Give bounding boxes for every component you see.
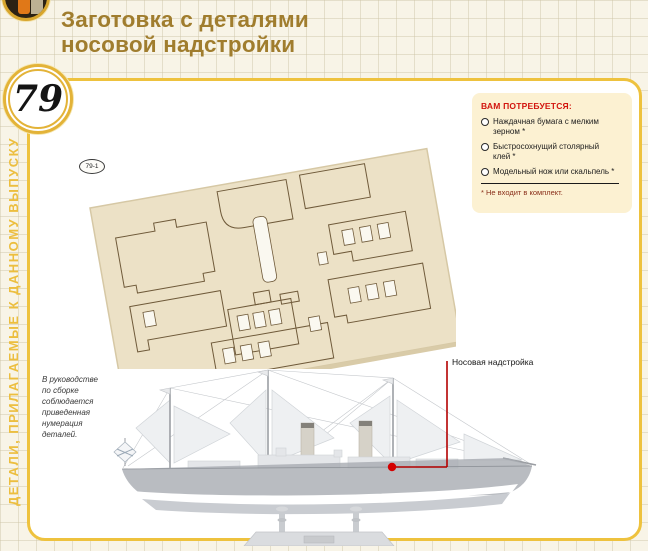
magazine-page: Заготовка с деталями носовой надстройки … — [0, 0, 648, 551]
requirement-label: Быстросохнущий столярный клей * — [493, 142, 599, 161]
requirements-footnote: * Не входит в комплект. — [481, 188, 623, 197]
page-title: Заготовка с деталями носовой надстройки — [61, 7, 309, 57]
hull — [122, 458, 532, 514]
requirement-label: Модельный нож или скальпель * — [493, 167, 614, 177]
requirement-item: Наждачная бумага с мелким зерном * — [481, 117, 623, 136]
assembly-note: В руководстве по сборке соблюдается прив… — [42, 374, 112, 440]
issue-number-badge: 79 — [3, 64, 73, 134]
publisher-logo-icon — [2, 0, 50, 21]
ship-model-photo — [108, 368, 538, 546]
stern-flag — [114, 438, 136, 466]
checkbox-circle-icon — [481, 118, 489, 126]
callout-label: Носовая надстройка — [452, 357, 533, 367]
mast-flags — [160, 370, 393, 394]
checkbox-circle-icon — [481, 143, 489, 151]
checkbox-circle-icon — [481, 168, 489, 176]
requirement-item: Быстросохнущий столярный клей * — [481, 142, 623, 161]
logo-figure-2 — [31, 0, 43, 14]
requirement-item: Модельный нож или скальпель * — [481, 167, 623, 177]
sheet-number-tag: 79-1 — [79, 159, 105, 174]
requirements-heading: ВАМ ПОТРЕБУЕТСЯ: — [481, 101, 623, 111]
logo-figure — [18, 0, 30, 14]
sails — [136, 390, 522, 463]
issue-number: 79 — [8, 69, 68, 129]
requirements-panel: ВАМ ПОТРЕБУЕТСЯ: Наждачная бумага с мелк… — [472, 93, 632, 213]
divider-line — [481, 183, 619, 184]
parts-sheet-photo — [84, 144, 456, 369]
sidebar-vertical-label: ДЕТАЛИ, ПРИЛАГАЕМЫЕ К ДАННОМУ ВЫПУСКУ — [6, 128, 24, 506]
requirement-label: Наждачная бумага с мелким зерном * — [493, 117, 599, 136]
